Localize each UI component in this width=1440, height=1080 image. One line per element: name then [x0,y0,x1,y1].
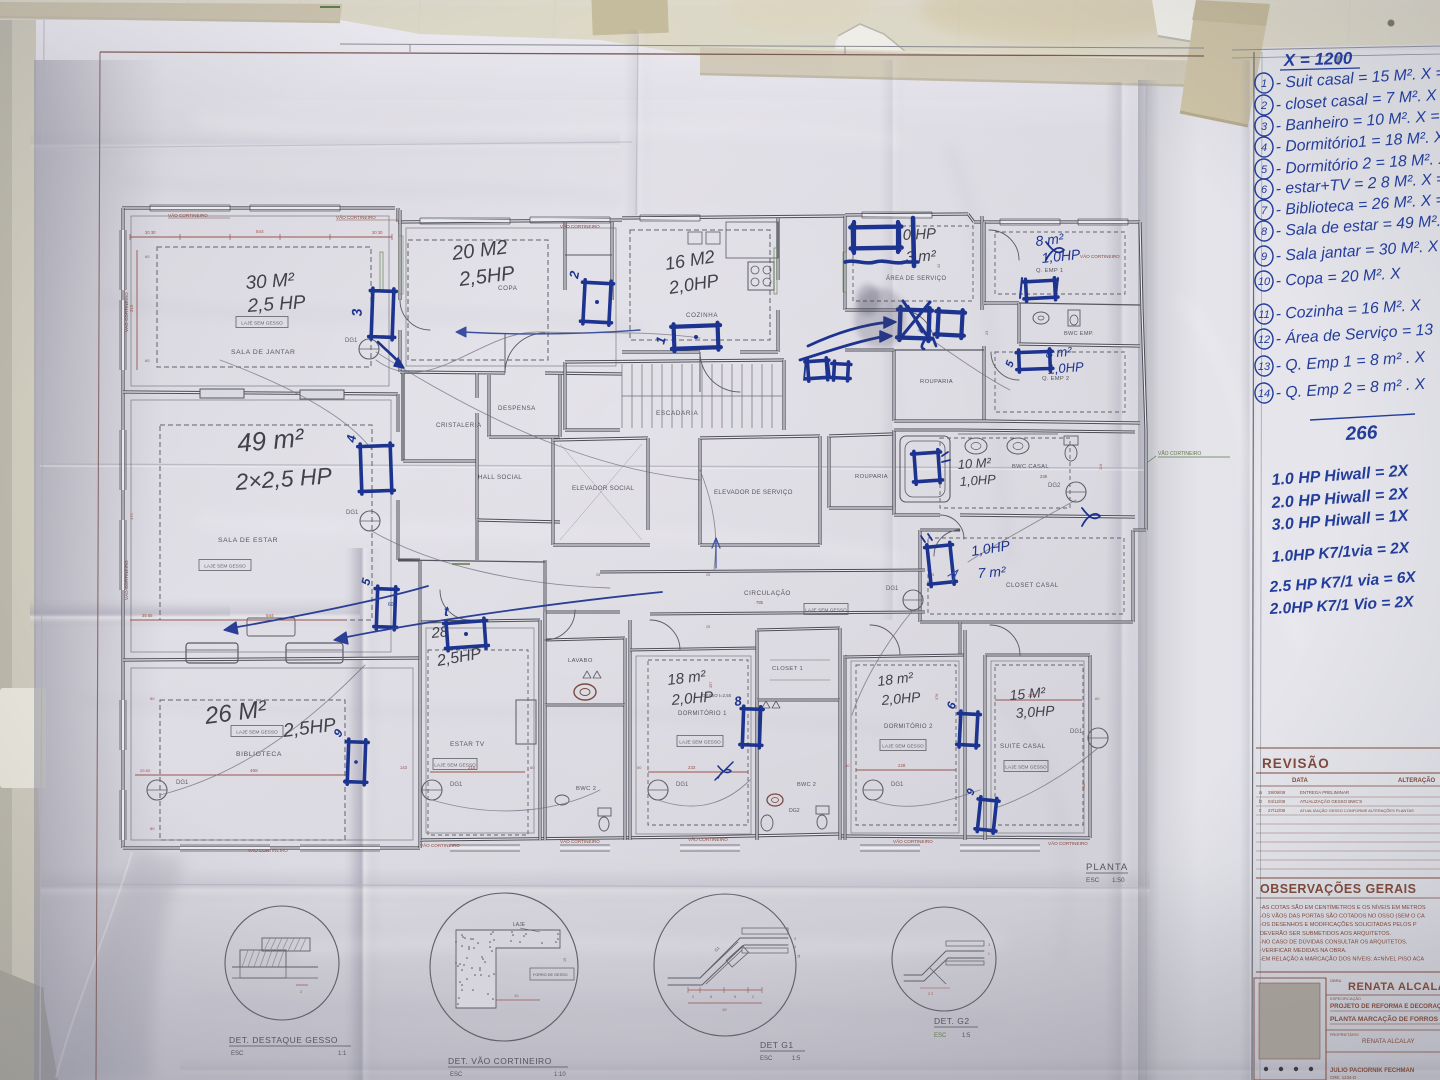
svg-text:13: 13 [1258,361,1271,373]
svg-text:9: 9 [1261,251,1267,263]
svg-text:DG2: DG2 [789,808,800,814]
svg-text:8 m²: 8 m² [1035,230,1066,249]
svg-text:30 30: 30 30 [372,230,383,235]
svg-text:DET G1: DET G1 [760,1040,794,1050]
svg-text:10: 10 [1258,276,1271,288]
svg-text:60: 60 [388,602,394,608]
svg-text:VÃO CORTINEIRO: VÃO CORTINEIRO [688,836,728,842]
svg-text:175: 175 [129,513,134,520]
svg-text:DET. DESTAQUE GESSO: DET. DESTAQUE GESSO [229,1035,338,1045]
svg-text:-OS DESENHOS E MODIFICAÇÕES SO: -OS DESENHOS E MODIFICAÇÕES SOLICITADAS … [1260,921,1417,928]
svg-text:ÁREA DE SERVIÇO: ÁREA DE SERVIÇO [886,275,947,282]
svg-text:PLANTA: PLANTA [1086,862,1128,873]
svg-text:-OS VÃOS DAS PORTAS SÃO COTADO: -OS VÃOS DAS PORTAS SÃO COTADOS NO OSSO … [1260,913,1425,920]
svg-text:VÃO CORTINEIRO: VÃO CORTINEIRO [560,838,600,844]
svg-text:BWC EMP.: BWC EMP. [1064,331,1094,337]
svg-text:-VERIFICAR MEDIDAS NA OBRA.: -VERIFICAR MEDIDAS NA OBRA. [1260,948,1347,954]
svg-text:3: 3 [1261,121,1268,133]
svg-text:19: 19 [722,1007,727,1012]
svg-text:BWC 2: BWC 2 [797,782,816,788]
svg-text:LAJE SEM GESSO: LAJE SEM GESSO [204,564,246,570]
svg-text:12: 12 [1258,334,1270,346]
svg-text:2 2: 2 2 [928,992,933,996]
svg-text:DG2: DG2 [1048,483,1061,489]
svg-text:40: 40 [845,763,850,768]
svg-text:CRISTALERIA: CRISTALERIA [436,422,482,429]
svg-text:15: 15 [563,958,567,962]
svg-text:VÃO CORTINEIRO: VÃO CORTINEIRO [336,214,376,220]
svg-text:ESTAR TV: ESTAR TV [450,741,485,748]
svg-text:11: 11 [1258,309,1269,321]
svg-text:0 HP: 0 HP [902,225,936,244]
svg-text:4: 4 [1261,142,1267,154]
svg-text:RENATA ALCALAY: RENATA ALCALAY [1348,981,1440,993]
svg-text:5: 5 [734,995,736,999]
svg-text:VÃO CORTINEIRO: VÃO CORTINEIRO [893,838,933,844]
svg-text:25: 25 [706,625,710,629]
svg-text:4: 4 [794,945,796,949]
svg-text:60: 60 [145,358,150,363]
svg-text:DG1: DG1 [676,782,689,788]
svg-text:X = 1200: X = 1200 [1282,49,1353,70]
svg-text:DATA: DATA [1292,778,1308,784]
svg-text:ENTREGA PRELIMINAR: ENTREGA PRELIMINAR [1300,790,1349,795]
svg-text:788: 788 [1081,783,1086,790]
svg-text:ESC: ESC [231,1051,244,1057]
svg-text:DG1: DG1 [891,782,904,788]
svg-text:COZINHA: COZINHA [686,312,718,319]
svg-text:DET. G2: DET. G2 [934,1016,970,1026]
svg-text:30 M²: 30 M² [245,270,296,294]
svg-text:266: 266 [1344,422,1378,445]
svg-text:2: 2 [752,995,754,999]
svg-text:544: 544 [266,613,274,618]
svg-text:DG1: DG1 [1070,729,1083,735]
svg-text:ATUALIZAÇÃO GESSO CONFORME ALT: ATUALIZAÇÃO GESSO CONFORME ALTERAÇÕES PL… [1300,808,1414,813]
svg-text:1:5: 1:5 [962,1033,971,1039]
svg-text:PROJETO DE REFORMA E DECORAÇÃ: PROJETO DE REFORMA E DECORAÇÃ [1330,1003,1440,1010]
svg-text:14: 14 [1258,388,1270,400]
svg-text:238: 238 [1040,474,1048,479]
svg-text:ESC: ESC [934,1033,947,1039]
svg-text:8: 8 [710,995,712,999]
svg-text:DG1: DG1 [345,338,358,344]
svg-text:ROUPARIA: ROUPARIA [920,379,953,385]
svg-text:10: 10 [514,993,519,998]
svg-text:ROUPARIA: ROUPARIA [855,474,888,480]
svg-text:Q. EMP 1: Q. EMP 1 [1036,268,1063,274]
svg-text:2,5 HP: 2,5 HP [246,292,307,317]
svg-text:15 M²: 15 M² [1009,684,1047,703]
svg-text:SUITE CASAL: SUITE CASAL [1000,743,1046,750]
svg-text:FORRO DE GESSO: FORRO DE GESSO [533,973,568,977]
svg-text:DET. VÃO CORTINEIRO: DET. VÃO CORTINEIRO [448,1056,552,1066]
svg-text:1,0HP: 1,0HP [959,471,996,489]
svg-text:LAVABO: LAVABO [568,658,593,664]
svg-text:LAJE SEM GESSO: LAJE SEM GESSO [236,730,278,736]
svg-text:35 55: 35 55 [142,613,153,618]
svg-text:80: 80 [150,696,155,701]
svg-text:VÃO CORTINEIRO: VÃO CORTINEIRO [168,212,208,218]
svg-text:49 m²: 49 m² [236,422,306,458]
svg-text:DORMITÓRIO 1: DORMITÓRIO 1 [678,710,727,717]
svg-text:143: 143 [400,765,408,770]
svg-text:DEVERÃO SER SUBMETIDOS AOS ARQ: DEVERÃO SER SUBMETIDOS AOS ARQUITETOS. [1260,930,1392,937]
svg-text:785: 785 [756,600,764,605]
svg-text:3: 3 [348,308,365,317]
svg-text:-AS COTAS SÃO EM CENTÍMETROS E: -AS COTAS SÃO EM CENTÍMETROS E OS NÍVEIS… [1260,904,1426,911]
svg-text:04/12/08: 04/12/08 [1268,799,1286,804]
svg-text:PLANTA MARCAÇÃO DE FORROS: PLANTA MARCAÇÃO DE FORROS [1330,1014,1439,1023]
svg-text:8: 8 [1261,226,1268,238]
svg-text:29/09/08: 29/09/08 [1268,790,1286,795]
svg-text:VÃO CORTINEIRO: VÃO CORTINEIRO [1048,840,1088,846]
svg-text:1:5: 1:5 [792,1056,801,1062]
svg-text:PROPRIETÁRIO: PROPRIETÁRIO [1330,1033,1359,1037]
svg-text:b: b [1259,799,1262,805]
svg-text:23: 23 [985,331,989,335]
svg-text:-EM RELAÇÃO A MARCAÇÃO DOS NÍV: -EM RELAÇÃO A MARCAÇÃO DOS NÍVEIS: A=NÍV… [1260,956,1424,963]
svg-text:DG1: DG1 [450,782,463,788]
svg-text:LAJE SEM GESSO: LAJE SEM GESSO [882,744,924,750]
svg-text:11: 11 [797,954,801,958]
svg-text:ESC: ESC [450,1072,463,1078]
svg-text:DESPENSA: DESPENSA [498,405,536,412]
svg-text:LAJE SEM GESSO: LAJE SEM GESSO [805,608,847,614]
svg-text:RENATA ALCALAY: RENATA ALCALAY [1362,1038,1415,1045]
svg-text:LAJE: LAJE [513,922,526,928]
svg-text:42: 42 [937,264,941,268]
svg-text:ATUALIZAÇÃO GESSO BWC'S: ATUALIZAÇÃO GESSO BWC'S [1300,799,1362,804]
svg-text:60: 60 [145,254,150,259]
svg-text:OBRA: OBRA [1330,978,1342,983]
svg-text:ELEVADOR SOCIAL: ELEVADOR SOCIAL [572,485,634,492]
svg-text:HALL SOCIAL: HALL SOCIAL [478,474,522,481]
svg-text:SALA DE ESTAR: SALA DE ESTAR [218,537,278,544]
svg-text:116: 116 [1099,464,1103,470]
svg-text:SALA DE JANTAR: SALA DE JANTAR [231,349,296,356]
svg-text:25: 25 [596,573,600,577]
svg-text:VÃO CORTINEIRO: VÃO CORTINEIRO [1158,450,1201,457]
svg-text:313: 313 [129,304,134,312]
svg-text:COPA: COPA [498,285,518,292]
svg-text:30 30: 30 30 [145,230,156,235]
svg-text:ESPECIFICAÇÃO: ESPECIFICAÇÃO [1330,996,1361,1001]
svg-text:REVISÃO: REVISÃO [1262,756,1330,771]
svg-text:378: 378 [935,694,939,700]
svg-text:DG1: DG1 [176,780,189,786]
svg-text:10 M²: 10 M² [957,455,992,472]
svg-text:1:1: 1:1 [338,1051,347,1057]
svg-text:80: 80 [150,826,155,831]
svg-text:ESC: ESC [1086,877,1100,884]
svg-text:ESCADARIA: ESCADARIA [656,410,698,417]
svg-text:228: 228 [898,763,906,768]
svg-text:60: 60 [1095,696,1100,701]
svg-text:DG1: DG1 [886,586,899,592]
svg-text:JULIO PACIORNIK FECHMAN: JULIO PACIORNIK FECHMAN [1330,1068,1414,1074]
svg-text:60: 60 [530,765,535,770]
svg-text:6: 6 [1261,184,1268,196]
svg-text:VÃO CORTINEIRO: VÃO CORTINEIRO [560,223,600,229]
svg-text:27/12/08: 27/12/08 [1268,808,1286,813]
svg-text:CLOSET CASAL: CLOSET CASAL [1006,582,1059,589]
svg-text:3: 3 [794,937,796,941]
svg-text:LAJE SEM GESSO: LAJE SEM GESSO [241,321,283,327]
svg-text:ESC: ESC [760,1056,773,1062]
svg-text:CRE. 1234-D: CRE. 1234-D [1330,1075,1356,1080]
svg-text:OBSERVAÇÕES GERAIS: OBSERVAÇÕES GERAIS [1260,881,1417,896]
svg-text:1: 1 [1261,78,1267,90]
svg-text:50: 50 [637,765,642,770]
svg-text:DG1: DG1 [346,510,359,516]
svg-text:ELEVADOR DE SERVIÇO: ELEVADOR DE SERVIÇO [714,489,793,496]
svg-text:1:10: 1:10 [554,1072,566,1078]
svg-text:8 m²: 8 m² [1045,344,1073,361]
svg-text:216: 216 [468,765,476,770]
svg-text:BWC 2: BWC 2 [576,786,596,792]
svg-text:25: 25 [706,573,710,577]
svg-text:7 m²: 7 m² [977,563,1007,581]
svg-text:ALTERAÇÃO: ALTERAÇÃO [1398,777,1436,784]
svg-text:BWC CASAL: BWC CASAL [1012,464,1049,470]
svg-text:7: 7 [1261,205,1268,217]
svg-text:LAJE SEM GESSO: LAJE SEM GESSO [679,740,721,746]
svg-text:468: 468 [250,768,258,773]
svg-text:1,0HP: 1,0HP [1047,359,1085,377]
svg-text:544: 544 [256,229,264,234]
svg-text:3,0HP: 3,0HP [1015,702,1056,721]
svg-text:5: 5 [1261,164,1268,176]
svg-text:DORMITÓRIO 2: DORMITÓRIO 2 [884,723,933,730]
svg-text:-NO CASO DE DÚVIDAS CONSULTAR: -NO CASO DE DÚVIDAS CONSULTAR OS ARQUITE… [1260,938,1408,945]
svg-text:397: 397 [709,682,713,688]
svg-text:a: a [1259,790,1262,796]
svg-text:Q. EMP 2: Q. EMP 2 [1042,376,1069,382]
svg-text:1:50: 1:50 [1112,877,1125,884]
svg-text:CLOSET 1: CLOSET 1 [772,666,803,672]
svg-text:1: 1 [988,952,990,956]
svg-text:VÃO CORTINEIRO: VÃO CORTINEIRO [1080,253,1120,259]
svg-text:2: 2 [1260,100,1267,112]
svg-text:CIRCULAÇÃO: CIRCULAÇÃO [744,588,791,597]
svg-text:20 80: 20 80 [140,768,151,773]
svg-text:3: 3 [988,943,990,947]
svg-text:LAJE SEM GESSO: LAJE SEM GESSO [1005,765,1047,771]
svg-text:2: 2 [692,995,694,999]
svg-text:233: 233 [688,765,696,770]
